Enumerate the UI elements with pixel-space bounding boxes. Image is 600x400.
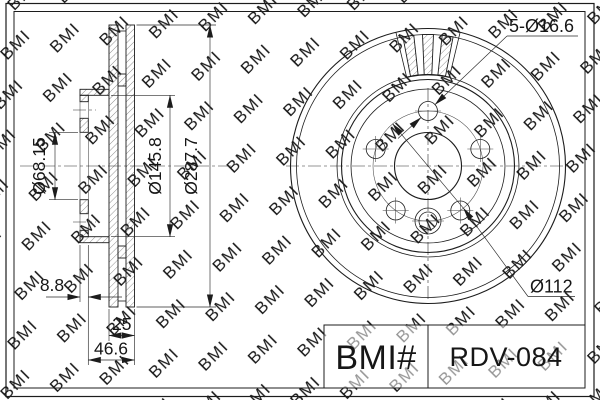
title-block: BMI# RDV-084 xyxy=(324,325,585,388)
cooling-vane xyxy=(423,35,434,75)
note-bolt-holes: 5-Ø16.6 xyxy=(509,16,574,36)
title-part-number: RDV-084 xyxy=(449,342,562,372)
vent-vane-section xyxy=(118,74,126,86)
note-bolt-circle: Ø112 xyxy=(530,277,573,297)
brake-disc-technical-drawing: BMI BMI xyxy=(0,0,600,400)
dim-total-width: 46.6 xyxy=(94,339,128,359)
dim-outer-diameter: Ø287.7 xyxy=(181,137,201,194)
dim-hat-thickness: 8.8 xyxy=(40,275,64,295)
drawing-canvas: BMI BMI xyxy=(0,0,600,400)
dimension-total-width: 46.6 xyxy=(88,339,134,361)
dim-friction-width: 25 xyxy=(112,314,131,334)
vent-vane-section xyxy=(118,246,126,258)
title-brand: BMI# xyxy=(335,339,416,377)
dim-bore-diameter: Ø68.15 xyxy=(29,137,49,194)
dim-hat-diameter: Ø145.8 xyxy=(145,137,165,194)
